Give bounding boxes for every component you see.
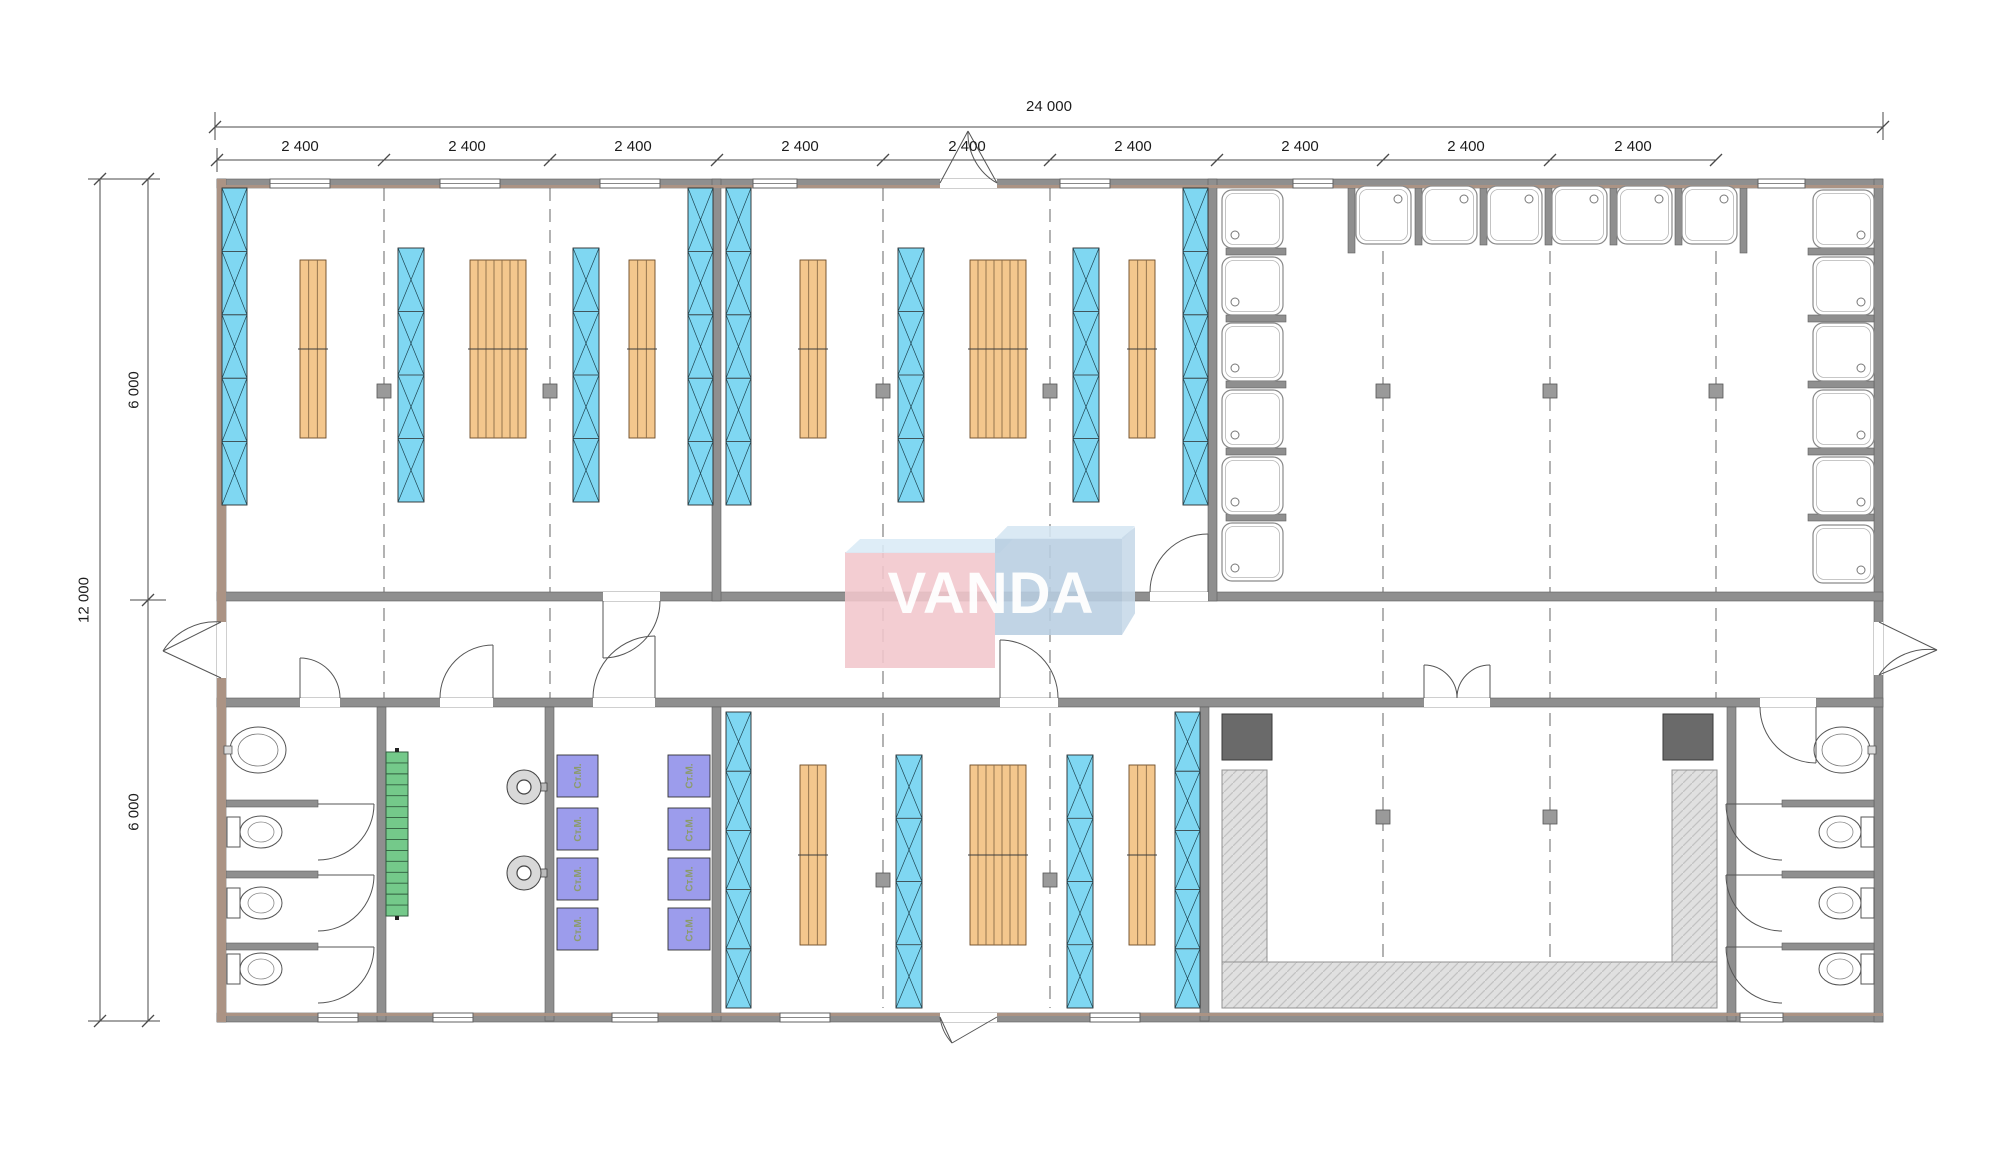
toilet	[240, 887, 282, 919]
exterior-door-leaf	[163, 651, 221, 678]
shower-tray	[1222, 390, 1283, 448]
column-marker	[1043, 873, 1057, 887]
shower-drain-icon	[1231, 431, 1239, 439]
door-swing	[1424, 665, 1457, 698]
exterior-door-leaf	[940, 131, 968, 183]
wall	[377, 707, 386, 1021]
wall	[1808, 248, 1874, 255]
shower-tray	[1356, 186, 1411, 244]
wall	[1610, 188, 1617, 245]
shower-tray	[1813, 390, 1874, 448]
exterior-door-leaf	[1879, 622, 1937, 650]
shower-tray	[1813, 457, 1874, 515]
water-heater-core	[517, 866, 531, 880]
sauna-stove	[1663, 714, 1713, 760]
wall	[1226, 448, 1286, 455]
toilet-tank	[227, 888, 240, 918]
door-swing	[1457, 665, 1490, 698]
shower-tray	[1422, 186, 1477, 244]
shower-drain-icon	[1857, 498, 1865, 506]
shower-tray	[1222, 523, 1283, 581]
shower-drain-icon	[1857, 231, 1865, 239]
shower-tray	[1222, 323, 1283, 381]
wall	[1226, 315, 1286, 322]
shower-drain-icon	[1590, 195, 1598, 203]
toilet	[1819, 953, 1861, 985]
door-swing	[440, 645, 493, 698]
door-swing	[1760, 707, 1816, 763]
wall	[226, 800, 318, 807]
shower-drain-icon	[1460, 195, 1468, 203]
stair-end-mark	[395, 748, 399, 752]
wall	[1226, 248, 1286, 255]
logo-blue-bevel	[995, 526, 1135, 539]
column-marker	[876, 384, 890, 398]
toilet	[1819, 816, 1861, 848]
door-opening	[300, 698, 340, 707]
washing-machine-label: Ст.М.	[685, 763, 696, 788]
toilet-tank	[227, 817, 240, 847]
shower-drain-icon	[1231, 298, 1239, 306]
sauna-bench-platform	[1222, 962, 1717, 1008]
wall	[1740, 188, 1747, 253]
water-heater-core	[517, 780, 531, 794]
door-swing	[318, 804, 374, 860]
shower-tray	[1222, 457, 1283, 515]
door-opening	[1424, 698, 1490, 707]
column-marker	[1376, 810, 1390, 824]
shower-tray	[1552, 186, 1607, 244]
column-marker	[1543, 810, 1557, 824]
logo-pink-bevel	[845, 539, 1013, 553]
door-opening	[440, 698, 493, 707]
floor-plan-page: Ст.М.Ст.М.Ст.М.Ст.М.Ст.М.Ст.М.Ст.М.Ст.М.…	[0, 0, 2000, 1175]
door-swing	[300, 658, 340, 698]
door-opening	[1000, 698, 1058, 707]
stairs	[386, 752, 408, 916]
shower-drain-icon	[1857, 566, 1865, 574]
shower-drain-icon	[1231, 498, 1239, 506]
sauna-stove	[1222, 714, 1272, 760]
column-marker	[1376, 384, 1390, 398]
door-swing	[318, 875, 374, 931]
sink-tap-icon	[224, 746, 232, 754]
door-swing	[603, 601, 660, 658]
toilet-tank	[1861, 817, 1874, 847]
wall	[1415, 188, 1422, 245]
sauna-bench-platform	[1672, 770, 1717, 962]
door-opening	[940, 1013, 997, 1022]
shower-tray	[1682, 186, 1737, 244]
washing-machine-label: Ст.М.	[573, 866, 584, 891]
wall	[226, 943, 318, 950]
shower-drain-icon	[1231, 364, 1239, 372]
sauna-bench-platform	[1222, 770, 1267, 962]
toilet-tank	[1861, 888, 1874, 918]
shower-tray	[1222, 190, 1283, 248]
shower-drain-icon	[1231, 564, 1239, 572]
exterior-door-leaf	[1879, 650, 1937, 675]
shower-drain-icon	[1857, 298, 1865, 306]
shower-tray	[1813, 190, 1874, 248]
wall	[1782, 871, 1874, 878]
door-opening	[1760, 698, 1816, 707]
wall	[226, 871, 318, 878]
shower-tray	[1813, 323, 1874, 381]
door-swing	[593, 636, 655, 698]
wall	[1200, 707, 1209, 1021]
washing-machine-label: Ст.М.	[685, 916, 696, 941]
shower-drain-icon	[1720, 195, 1728, 203]
shower-drain-icon	[1525, 195, 1533, 203]
wall	[1208, 179, 1217, 601]
door-opening	[940, 179, 997, 188]
shower-drain-icon	[1857, 364, 1865, 372]
washing-machine-label: Ст.М.	[573, 816, 584, 841]
shower-tray	[1222, 257, 1283, 315]
toilet-tank	[227, 954, 240, 984]
column-marker	[377, 384, 391, 398]
washing-machine-label: Ст.М.	[573, 763, 584, 788]
toilet-tank	[1861, 954, 1874, 984]
washing-machine-label: Ст.М.	[685, 866, 696, 891]
wall	[1782, 800, 1874, 807]
wall	[545, 707, 554, 1021]
toilet	[240, 816, 282, 848]
wall	[1782, 943, 1874, 950]
wall	[1545, 188, 1552, 245]
door-swing	[1000, 640, 1058, 698]
shower-drain-icon	[1857, 431, 1865, 439]
exterior-door-leaf	[968, 131, 997, 183]
wall	[1808, 448, 1874, 455]
door-opening	[593, 698, 655, 707]
wall	[1675, 188, 1682, 245]
door-opening	[1150, 592, 1208, 601]
washing-machine-label: Ст.М.	[685, 816, 696, 841]
shower-tray	[1487, 186, 1542, 244]
wall	[712, 707, 721, 1021]
shower-tray	[1617, 186, 1672, 244]
washing-machine-label: Ст.М.	[573, 916, 584, 941]
wall	[1226, 381, 1286, 388]
shower-tray	[1813, 257, 1874, 315]
wall	[1808, 381, 1874, 388]
toilet	[1819, 887, 1861, 919]
toilet	[240, 953, 282, 985]
shower-drain-icon	[1655, 195, 1663, 203]
door-opening	[1874, 622, 1883, 675]
column-marker	[876, 873, 890, 887]
wall	[1808, 315, 1874, 322]
stair-end-mark	[395, 916, 399, 920]
door-swing	[1150, 534, 1208, 592]
door-swing	[318, 947, 374, 1003]
shower-drain-icon	[1394, 195, 1402, 203]
column-marker	[1709, 384, 1723, 398]
door-opening	[217, 622, 226, 678]
sink-tap-icon	[1868, 746, 1876, 754]
wall	[1480, 188, 1487, 245]
wall	[1727, 707, 1736, 1021]
shower-tray	[1813, 525, 1874, 583]
shower-drain-icon	[1231, 231, 1239, 239]
wall	[1348, 188, 1355, 253]
logo-text: VANDA	[845, 560, 1137, 627]
door-opening	[603, 592, 660, 601]
column-marker	[1543, 384, 1557, 398]
column-marker	[1043, 384, 1057, 398]
column-marker	[543, 384, 557, 398]
